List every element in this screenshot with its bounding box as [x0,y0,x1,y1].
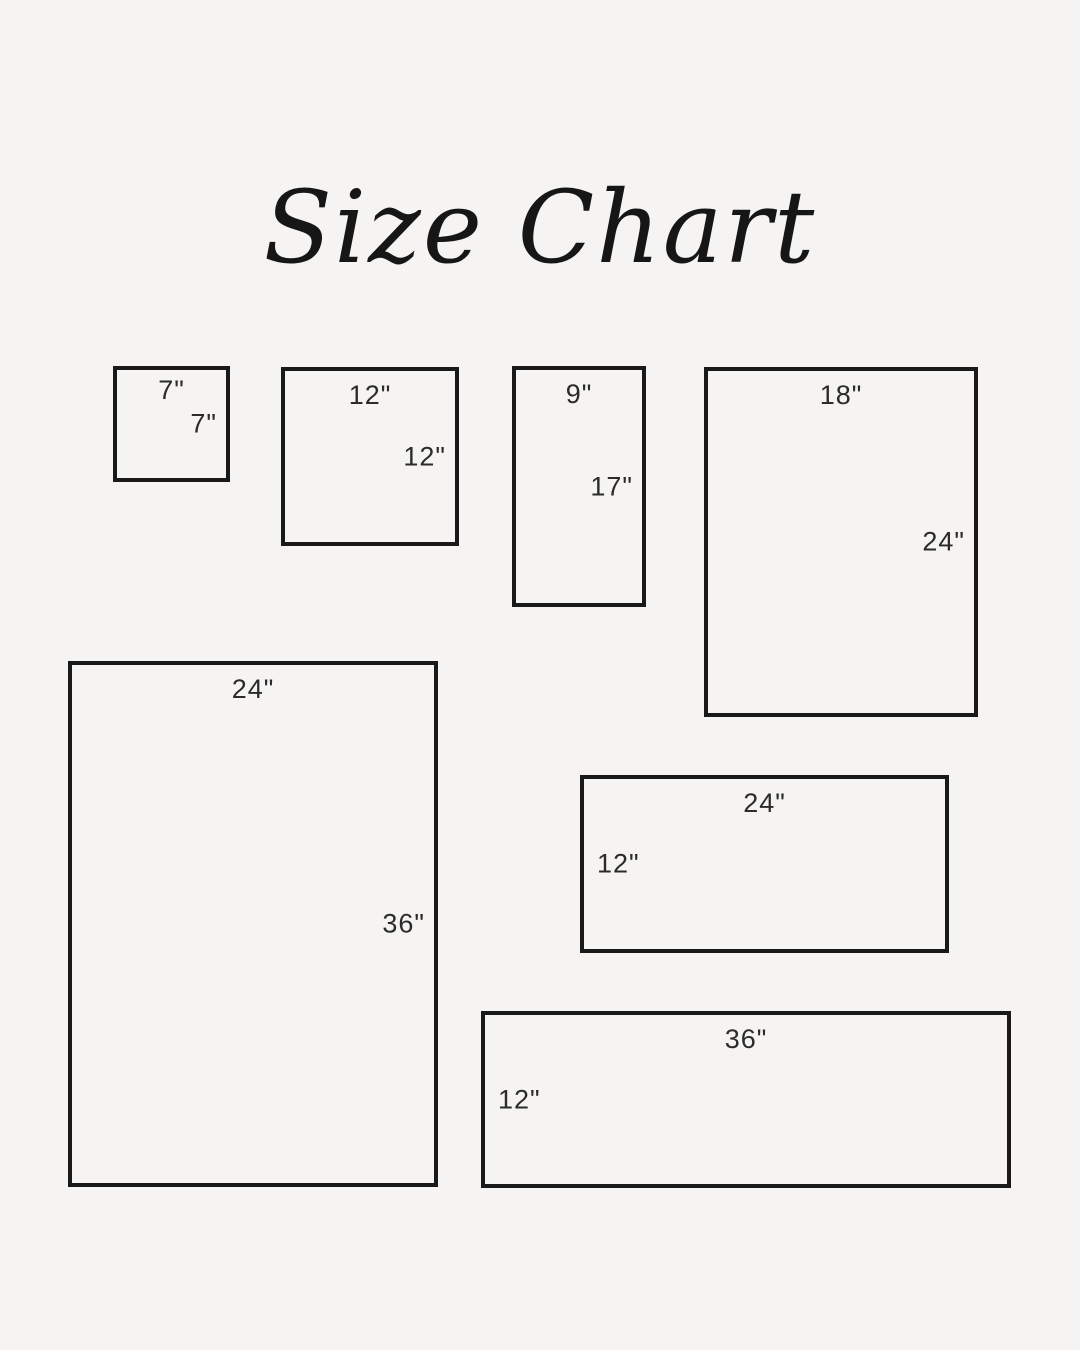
size-chart-canvas: Size Chart 7" 7" 12" 12" 9" 17" 18" 24" … [0,0,1080,1350]
height-label: 36" [382,909,425,940]
height-label: 12" [498,1084,541,1115]
height-label: 7" [190,409,217,440]
width-label: 24" [72,674,434,705]
size-rect-24x36: 24" 36" [68,661,438,1187]
size-rect-18x24: 18" 24" [704,367,978,717]
height-label: 17" [590,471,633,502]
height-label: 12" [403,441,446,472]
width-label: 36" [485,1024,1007,1055]
width-label: 18" [708,380,974,411]
width-label: 7" [117,375,226,406]
height-label: 24" [922,527,965,558]
width-label: 9" [516,379,642,410]
size-rect-24x12: 24" 12" [580,775,949,953]
page-title: Size Chart [0,170,1080,285]
width-label: 12" [285,380,455,411]
width-label: 24" [584,788,945,819]
size-rect-12x12: 12" 12" [281,367,459,546]
size-rect-7x7: 7" 7" [113,366,230,482]
size-rect-36x12: 36" 12" [481,1011,1011,1188]
size-rect-9x17: 9" 17" [512,366,646,607]
height-label: 12" [597,849,640,880]
